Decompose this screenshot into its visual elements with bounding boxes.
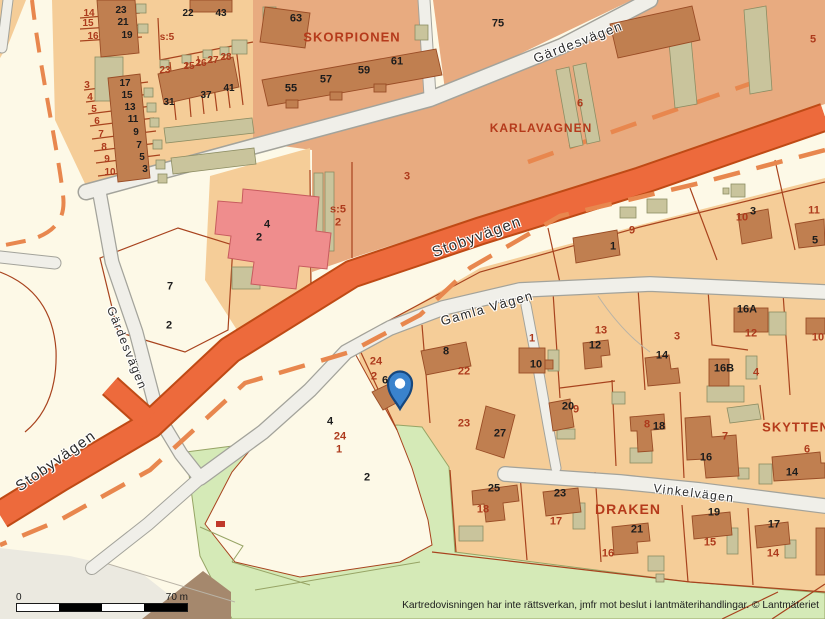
small-red-building <box>216 521 225 527</box>
map-attribution: Kartredovisningen har inte rättsverkan, … <box>402 600 819 611</box>
scale-start-label: 0 <box>16 592 22 603</box>
scale-end-label: 70 m <box>166 592 188 603</box>
scale-bar-segment <box>59 604 102 611</box>
scale-bar: 0 70 m <box>16 592 188 614</box>
scale-bar-track <box>16 603 188 612</box>
base-map[interactable] <box>0 0 825 619</box>
scale-bar-segment <box>144 604 187 611</box>
map-viewport[interactable]: GärdesvägenStobyvägenGärdesvägenStobyväg… <box>0 0 825 619</box>
pin-center-dot <box>395 378 405 388</box>
